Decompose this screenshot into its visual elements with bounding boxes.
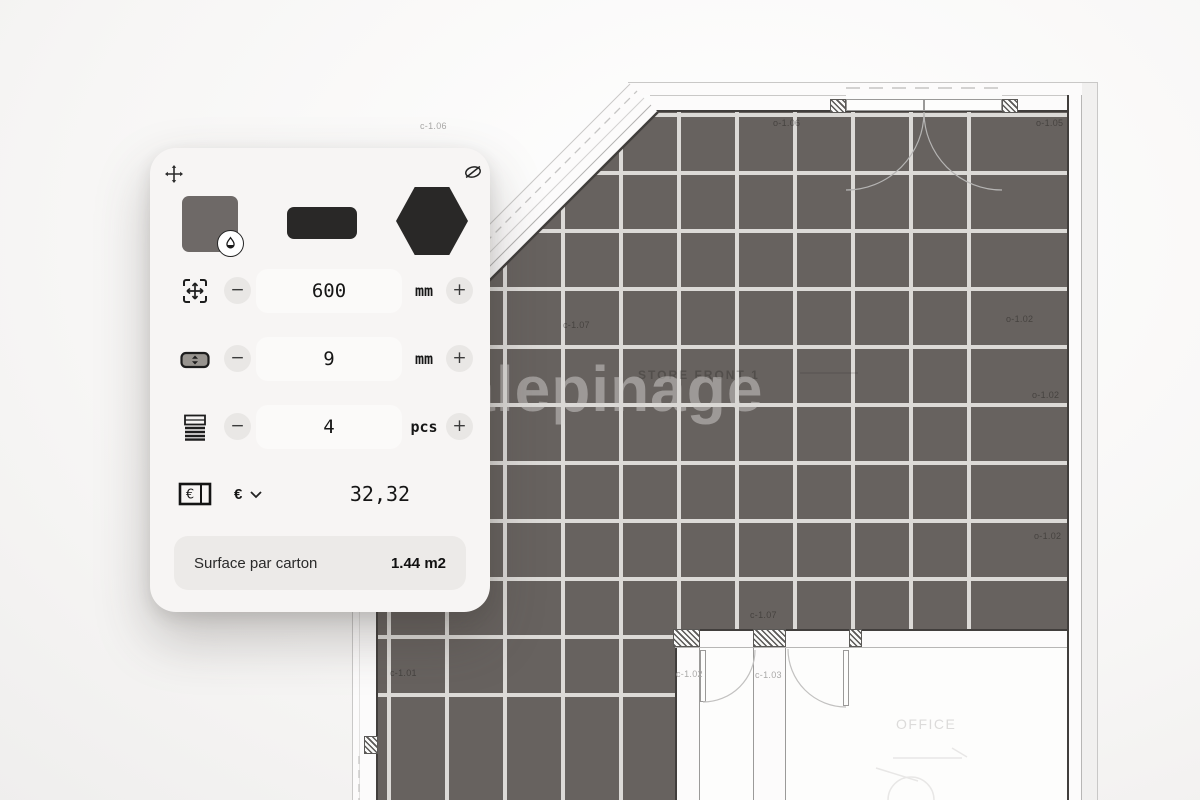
chevron-down-icon (249, 490, 263, 499)
plan-annotation: o-1.06 (773, 118, 800, 128)
plan-annotation: o-1.02 (1032, 390, 1059, 400)
rectangle-shape-button[interactable] (287, 207, 357, 239)
hexagon-shape-button[interactable] (396, 187, 468, 255)
pieces-decrease-button[interactable]: − (224, 413, 251, 440)
plan-annotation: c-1.06 (420, 121, 447, 131)
room-label: OFFICE (896, 716, 956, 732)
plan-annotation: c-1.02 (676, 669, 703, 679)
banknote-icon: € (178, 480, 212, 508)
pieces-stack-icon (182, 413, 208, 441)
pieces-row: − 4 pcs + (150, 405, 490, 449)
tile-color-swatch[interactable] (182, 196, 238, 252)
size-row: − 600 mm + (150, 269, 490, 313)
joint-decrease-button[interactable]: − (224, 345, 251, 372)
summary-label: Surface par carton (194, 555, 317, 572)
pieces-increase-button[interactable]: + (446, 413, 473, 440)
currency-symbol: € (234, 486, 242, 503)
joint-increase-button[interactable]: + (446, 345, 473, 372)
size-value-field[interactable]: 600 (256, 269, 402, 313)
tile-size-icon (180, 276, 210, 306)
svg-text:€: € (186, 488, 194, 503)
currency-select[interactable]: € (234, 472, 263, 516)
plan-annotation: c-1.07 (750, 610, 777, 620)
plan-annotation: o-1.02 (1006, 314, 1033, 324)
joint-value-field[interactable]: 9 (256, 337, 402, 381)
pieces-unit-label: pcs (406, 405, 442, 449)
plan-annotation: c-1.01 (390, 668, 417, 678)
app-canvas: c-1.06o-1.06o-1.05c-1.07o-1.02o-1.02o-1.… (0, 0, 1200, 800)
size-decrease-button[interactable]: − (224, 277, 251, 304)
size-unit-label: mm (406, 269, 442, 313)
plan-annotation: o-1.02 (1034, 531, 1061, 541)
tile-properties-panel: − 600 mm + − 9 mm + (150, 148, 490, 612)
price-row: € € 32,32 (150, 472, 490, 516)
surface-summary: Surface par carton 1.44 m2 (174, 536, 466, 590)
joint-row: − 9 mm + (150, 337, 490, 381)
hide-panel-icon[interactable] (462, 161, 484, 183)
size-increase-button[interactable]: + (446, 277, 473, 304)
price-value-field[interactable]: 32,32 (300, 472, 460, 516)
color-picker-icon[interactable] (217, 230, 244, 257)
plan-annotation: c-1.03 (755, 670, 782, 680)
plan-annotation: c-1.07 (563, 320, 590, 330)
plan-annotation: o-1.05 (1036, 118, 1063, 128)
pieces-value-field[interactable]: 4 (256, 405, 402, 449)
joint-unit-label: mm (406, 337, 442, 381)
move-handle-icon[interactable] (163, 163, 185, 185)
summary-value: 1.44 m2 (391, 555, 446, 572)
joint-width-icon (180, 350, 210, 370)
